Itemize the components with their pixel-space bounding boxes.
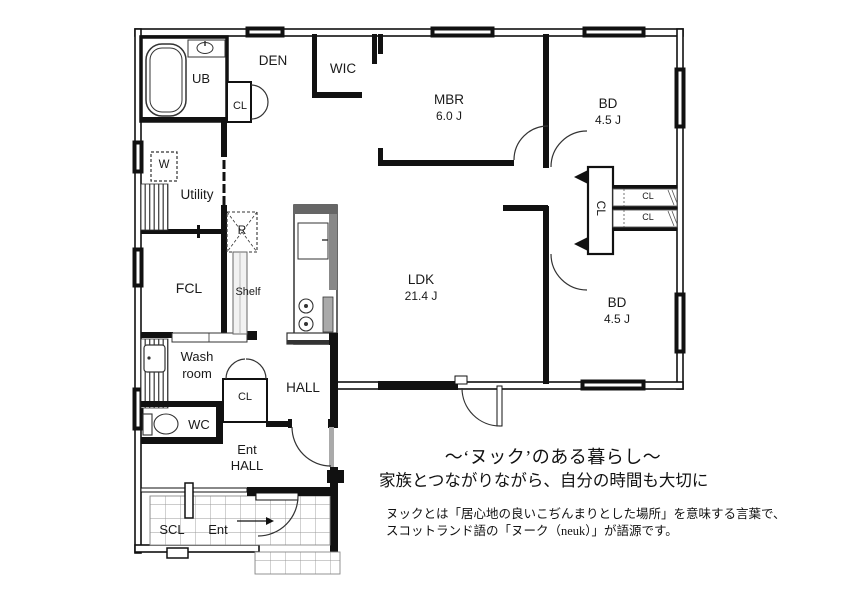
closet-label-hall: CL <box>228 392 262 404</box>
bedroom-walls <box>378 34 677 384</box>
refrigerator-label: R <box>227 224 257 237</box>
room-label-utility: Utility <box>158 188 236 202</box>
caption-title: ～‘ヌック’のある暮らし～ <box>393 443 713 469</box>
room-label-mbr: MBR <box>419 93 479 107</box>
room-label-den: DEN <box>243 54 303 68</box>
room-label-scl: SCL <box>152 523 192 537</box>
room-label-shelf: Shelf <box>226 287 270 299</box>
scl-partition <box>185 483 193 518</box>
washer-label: W <box>151 159 177 171</box>
kitchen-counter <box>287 205 337 344</box>
room-size-bd-upper: 4.5 J <box>578 114 638 127</box>
washbasin-icon <box>144 345 165 372</box>
room-label-bd-lower: BD <box>587 296 647 310</box>
hall-to-enthall-door <box>292 427 334 467</box>
ldk-south-sliding-window <box>378 381 458 390</box>
closet-label-nook: CL <box>594 196 607 221</box>
toilet-icon <box>143 414 178 435</box>
room-label-ent: Ent <box>198 523 238 537</box>
room-label-enthall-2: HALL <box>220 459 274 473</box>
room-label-ub: UB <box>181 72 221 86</box>
room-label-fcl: FCL <box>158 281 220 296</box>
porch-tile <box>255 552 340 574</box>
kitchen-sink-icon <box>298 223 328 259</box>
closet-label-bd-lower: CL <box>637 213 659 222</box>
room-label-wc: WC <box>184 418 214 432</box>
room-size-mbr: 6.0 J <box>419 110 479 123</box>
room-label-ldk: LDK <box>391 273 451 287</box>
room-size-ldk: 21.4 J <box>391 290 451 303</box>
room-size-bd-lower: 4.5 J <box>587 313 647 326</box>
bath-counter-icon <box>188 40 225 57</box>
room-label-washroom-2: room <box>176 367 218 381</box>
caption-body-line2: スコットランド語の「ヌーク（neuk）」が語源です。 <box>386 520 678 539</box>
closet-label-bd-upper: CL <box>637 192 659 201</box>
closet-label-den: CL <box>227 101 253 113</box>
room-label-washroom-1: Wash <box>176 350 218 364</box>
bathtub-icon <box>146 44 186 116</box>
caption-subtitle: 家族とつながりながら、自分の時間も大切に <box>379 467 699 491</box>
room-label-enthall-1: Ent <box>220 443 274 457</box>
wic-walls <box>312 34 383 166</box>
room-label-bd-upper: BD <box>578 97 638 111</box>
room-label-wic: WIC <box>313 62 373 76</box>
room-label-hall: HALL <box>280 381 326 395</box>
floorplan-page: UB DEN WIC CL MBR 6.0 J BD 4.5 J BD 4.5 … <box>0 0 842 595</box>
